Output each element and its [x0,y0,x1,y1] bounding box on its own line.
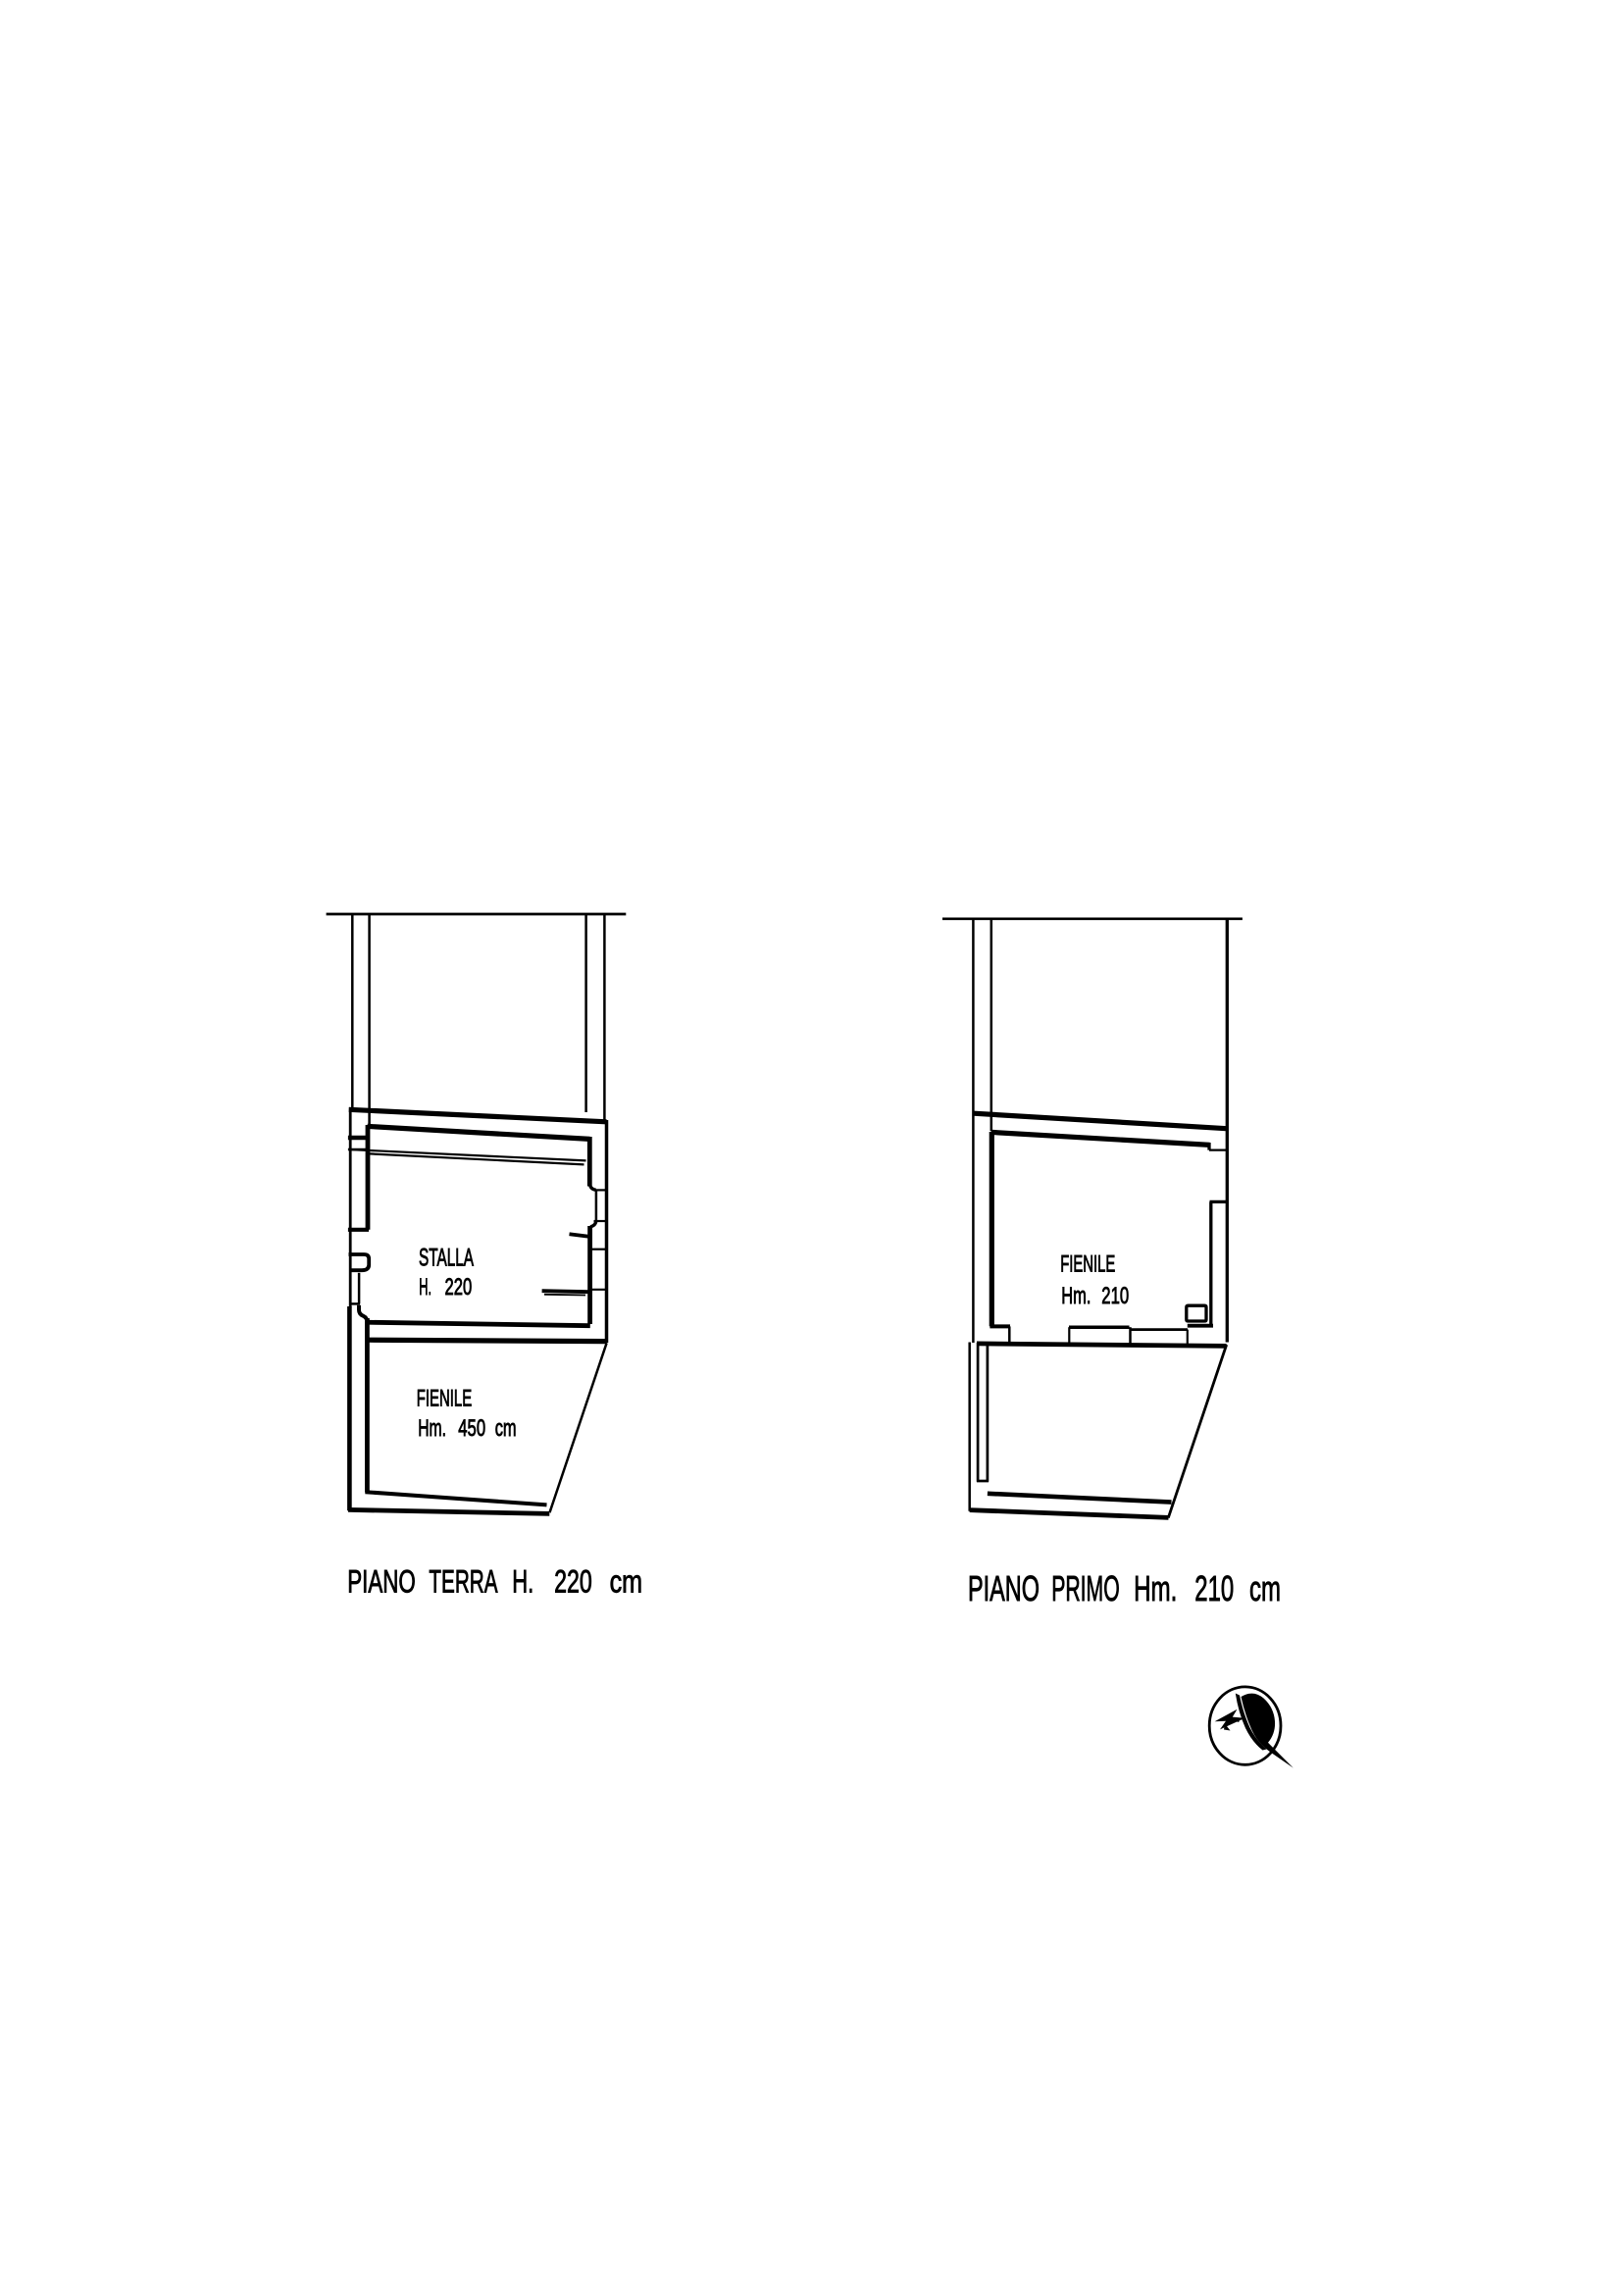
svg-text:PIANO: PIANO [968,1568,1040,1608]
svg-text:H.: H. [419,1274,431,1301]
svg-text:Hm.: Hm. [1061,1283,1091,1309]
svg-text:TERRA: TERRA [429,1564,497,1600]
svg-text:210: 210 [1194,1568,1234,1608]
svg-text:Hm.: Hm. [418,1415,446,1442]
svg-text:220: 220 [554,1564,592,1600]
svg-text:450: 450 [458,1415,485,1442]
svg-text:cm: cm [610,1564,643,1600]
svg-text:cm: cm [495,1415,517,1442]
svg-text:PIANO: PIANO [347,1564,416,1600]
svg-text:PRIMO: PRIMO [1051,1568,1120,1608]
svg-text:220: 220 [445,1274,473,1301]
svg-text:FIENILE: FIENILE [1060,1251,1115,1278]
svg-text:210: 210 [1101,1283,1129,1309]
svg-text:H.: H. [512,1564,533,1600]
svg-text:STALLA: STALLA [419,1245,474,1272]
svg-text:FIENILE: FIENILE [417,1386,473,1412]
svg-text:cm: cm [1249,1568,1281,1608]
svg-text:Hm.: Hm. [1134,1568,1177,1608]
